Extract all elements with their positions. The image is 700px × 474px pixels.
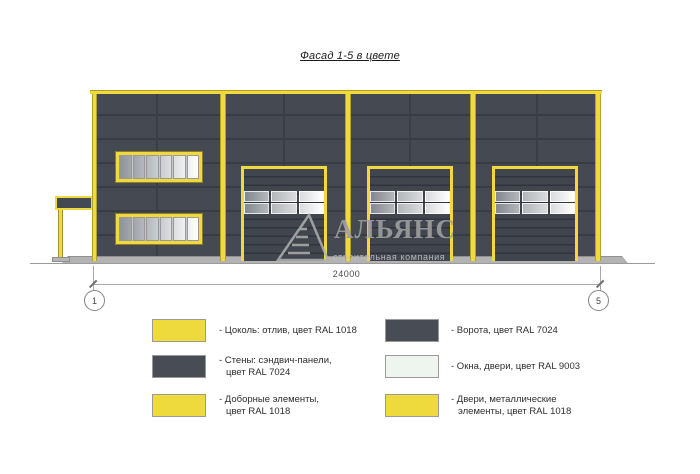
legend-label-trim: - Доборные элементы, цвет RAL 1018	[219, 394, 319, 417]
door-window-pane	[397, 191, 422, 202]
door-window-pane	[550, 191, 575, 202]
ribbon-window-lower	[115, 213, 203, 245]
dimension-extension-right	[600, 266, 601, 291]
door-window-pane	[522, 191, 547, 202]
canopy-post	[58, 210, 63, 258]
ground-line	[30, 263, 655, 264]
window-panes	[119, 217, 199, 241]
legend-label-gates: - Ворота, цвет RAL 7024	[451, 319, 558, 342]
door-window-pane	[550, 203, 575, 214]
ribbon-window-upper	[115, 151, 203, 183]
corner-trim-right	[595, 94, 601, 261]
legend-swatch-gates	[385, 319, 439, 342]
page-title: Фасад 1-5 в цвете	[0, 50, 700, 62]
axis-marker-1: 1	[84, 290, 105, 311]
legend-swatch-plinth	[152, 319, 206, 342]
window-pane	[173, 217, 186, 241]
legend-label-doors: - Двери, металлические элементы, цвет RA…	[451, 394, 571, 417]
door-window-pane	[271, 203, 296, 214]
garage-door-2	[367, 166, 453, 261]
window-pane	[146, 217, 159, 241]
door-window-pane	[495, 203, 520, 214]
door-window-band	[495, 191, 575, 215]
column-trim-strip	[470, 94, 476, 261]
door-window-pane	[244, 203, 269, 214]
door-window-pane	[425, 203, 450, 214]
legend-swatch-windows	[385, 355, 439, 378]
legend-swatch-walls	[152, 355, 206, 378]
window-pane	[187, 217, 200, 241]
door-window-pane	[271, 191, 296, 202]
door-window-pane	[370, 191, 395, 202]
door-window-pane	[244, 191, 269, 202]
window-pane	[133, 217, 146, 241]
door-window-pane	[397, 203, 422, 214]
door-window-pane	[425, 191, 450, 202]
roof-trim	[90, 90, 602, 94]
dimension-label: 24000	[93, 269, 600, 279]
window-pane	[173, 155, 186, 179]
canopy-base	[52, 257, 70, 262]
facade-wall	[92, 94, 601, 261]
door-window-pane	[522, 203, 547, 214]
legend-label-walls: - Стены: сэндвич-панели, цвет RAL 7024	[219, 355, 332, 378]
door-window-pane	[299, 191, 324, 202]
window-pane	[160, 155, 173, 179]
window-panes	[119, 155, 199, 179]
axis-marker-5: 5	[588, 290, 609, 311]
door-window-band	[244, 191, 324, 215]
legend-label-windows: - Окна, двери, цвет RAL 9003	[451, 355, 580, 378]
window-pane	[146, 155, 159, 179]
door-window-pane	[370, 203, 395, 214]
door-window-band	[370, 191, 450, 215]
legend-swatch-trim	[152, 394, 206, 417]
column-trim-strip	[220, 94, 226, 261]
window-pane	[187, 155, 200, 179]
window-pane	[160, 217, 173, 241]
garage-door-3	[492, 166, 578, 261]
legend-label-plinth: - Цоколь: отлив, цвет RAL 1018	[219, 319, 357, 342]
window-pane	[119, 217, 132, 241]
column-trim-strip	[345, 94, 351, 261]
legend-swatch-doors	[385, 394, 439, 417]
garage-door-1	[241, 166, 327, 261]
entrance-canopy-roof	[55, 196, 93, 210]
window-pane	[133, 155, 146, 179]
dimension-line	[93, 284, 600, 285]
corner-trim-left	[92, 94, 97, 261]
door-window-pane	[495, 191, 520, 202]
window-pane	[119, 155, 132, 179]
door-window-pane	[299, 203, 324, 214]
